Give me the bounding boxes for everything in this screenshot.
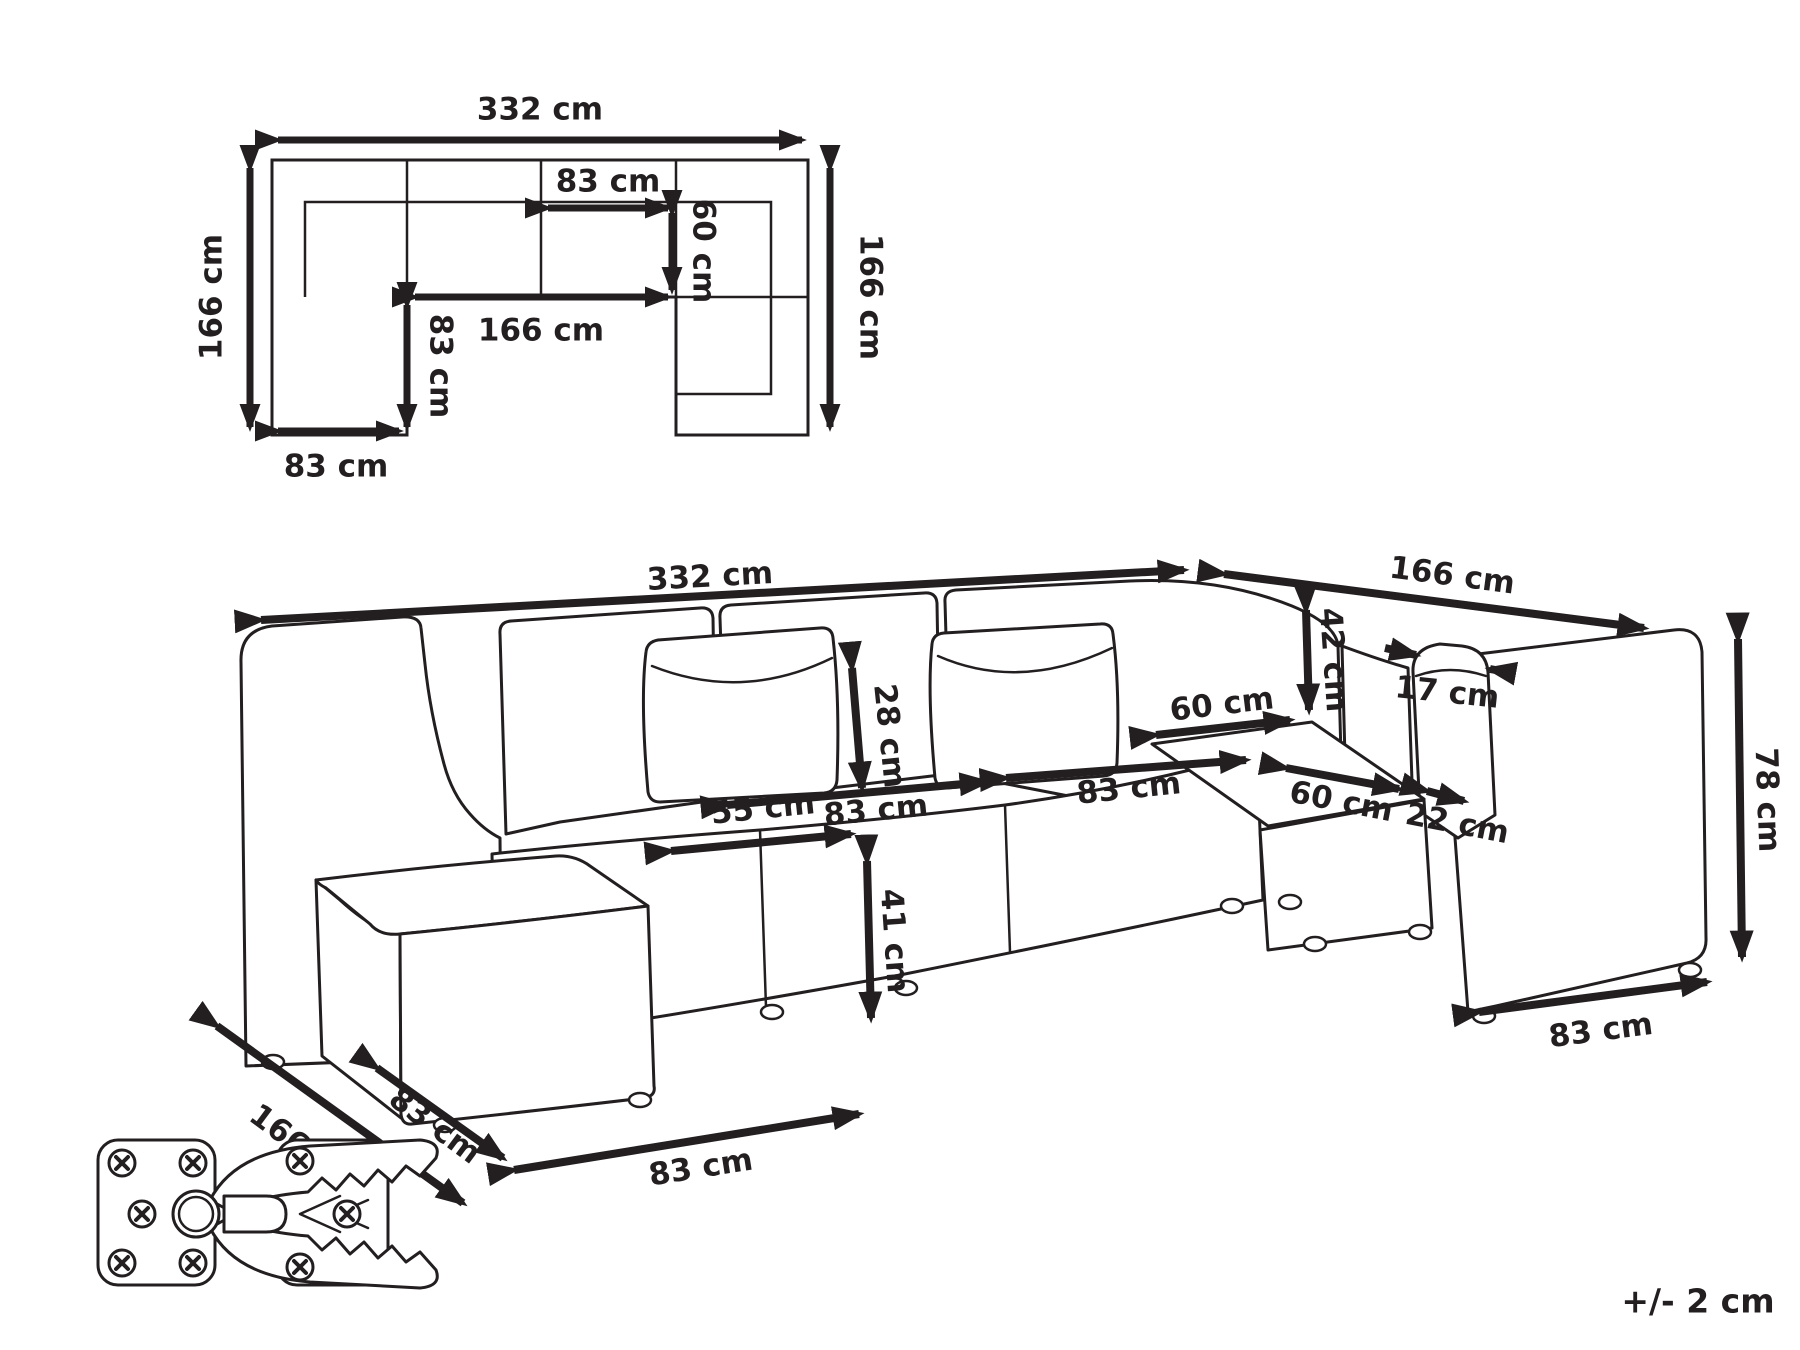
plan-dim-overall-width: 332 cm (477, 92, 603, 128)
persp-arrow-armrest-depth-left (1385, 648, 1416, 655)
plan-dim-seat-depth: 60 cm (686, 199, 722, 304)
sofa-dimension-diagram: 332 cm 166 cm 166 cm 83 cm 60 cm 166 cm … (0, 0, 1800, 1350)
persp-dim-end-module-width: 83 cm (1547, 1006, 1655, 1055)
screw-icon (287, 1254, 313, 1280)
persp-arrow-backrest-height (1306, 610, 1309, 710)
screw-icon (109, 1150, 135, 1176)
plan-dim-inner-opening: 166 cm (478, 313, 604, 349)
diagram-canvas: 332 cm 166 cm 166 cm 83 cm 60 cm 166 cm … (0, 0, 1800, 1350)
persp-dim-total-width: 332 cm (646, 555, 774, 598)
connector-tongue (224, 1196, 286, 1232)
screw-icon (180, 1250, 206, 1276)
back-pillow-right (930, 624, 1118, 788)
screw-icon (109, 1250, 135, 1276)
connector-detail (98, 1140, 437, 1288)
back-pillow-left (643, 628, 837, 802)
screw-icon (287, 1148, 313, 1174)
persp-arrow-total-height (1738, 639, 1742, 957)
perspective-view: 332 cm 166 cm 28 cm 55 cm 42 cm 17 cm 60… (217, 549, 1787, 1203)
plan-dim-module-width: 83 cm (556, 164, 661, 200)
persp-dim-total-height: 78 cm (1748, 747, 1788, 853)
persp-arrow-seat-height (867, 861, 871, 1018)
plan-view: 332 cm 166 cm 166 cm 83 cm 60 cm 166 cm … (194, 92, 889, 485)
tolerance-note: +/- 2 cm (1621, 1282, 1774, 1321)
screw-icon (180, 1150, 206, 1176)
screw-icon (129, 1201, 155, 1227)
plan-dim-left-depth: 166 cm (194, 234, 230, 360)
screw-icon (334, 1201, 360, 1227)
persp-arrow-armrest-depth-right (1490, 669, 1512, 673)
plan-dim-chaise-depth: 83 cm (423, 314, 459, 419)
persp-dim-seat-height: 41 cm (873, 887, 916, 994)
plan-dim-right-depth: 166 cm (853, 234, 889, 360)
plan-dim-chaise-width: 83 cm (284, 449, 389, 485)
chaise-module (316, 856, 654, 1124)
persp-dim-backrest-height: 42 cm (1312, 606, 1355, 713)
